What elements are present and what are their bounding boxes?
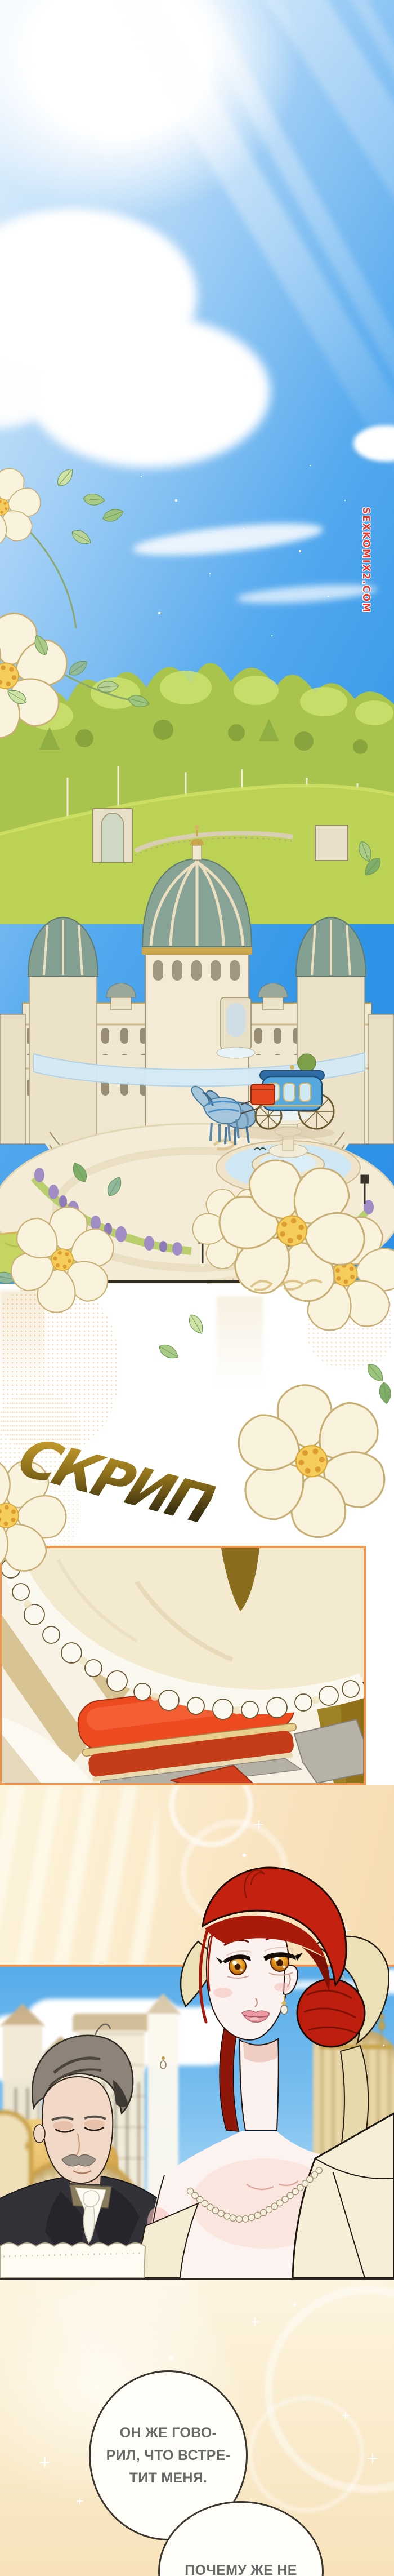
panel-footstool-closeup xyxy=(0,1546,366,1785)
flower-cluster-bottom-right xyxy=(325,1214,394,1406)
footstool-scene xyxy=(2,1548,364,1783)
sparkle xyxy=(250,2317,259,2326)
sparkle-dot xyxy=(169,2356,174,2361)
cloud xyxy=(353,425,394,462)
characters xyxy=(0,1843,394,2278)
flower-cluster-bottom-left xyxy=(0,1147,231,1400)
gold-scroll-ornament xyxy=(247,1273,325,1295)
speech-bubble-2-text: ПОЧЕМУ ЖЕ НЕ xyxy=(185,2559,297,2576)
cloud-wisp xyxy=(236,581,377,606)
wall-fountain xyxy=(217,997,255,1058)
sparkle xyxy=(367,2453,378,2464)
lace-trim xyxy=(0,2243,145,2278)
flower-cluster-top-left xyxy=(0,459,166,741)
sparkle xyxy=(254,1820,263,1829)
hair-bun xyxy=(297,1979,365,2047)
flower-cluster-right xyxy=(331,812,394,1138)
sparkle xyxy=(39,2457,50,2468)
red-luggage-box xyxy=(251,1084,275,1105)
comic-page: СКРИП xyxy=(0,0,394,2576)
speech-bubble-1-text: ОН ЖЕ ГОВО- РИЛ, ЧТО ВСТРЕ- ТИТ МЕНЯ. xyxy=(106,2422,231,2489)
face xyxy=(207,1926,289,2039)
panel-3-bottom-border xyxy=(0,2278,394,2280)
sparkle xyxy=(77,2498,83,2504)
sparkle-dot xyxy=(293,2303,297,2307)
site-watermark: SEXKOMIX2.COM xyxy=(360,507,371,613)
sparkle xyxy=(342,2412,349,2419)
